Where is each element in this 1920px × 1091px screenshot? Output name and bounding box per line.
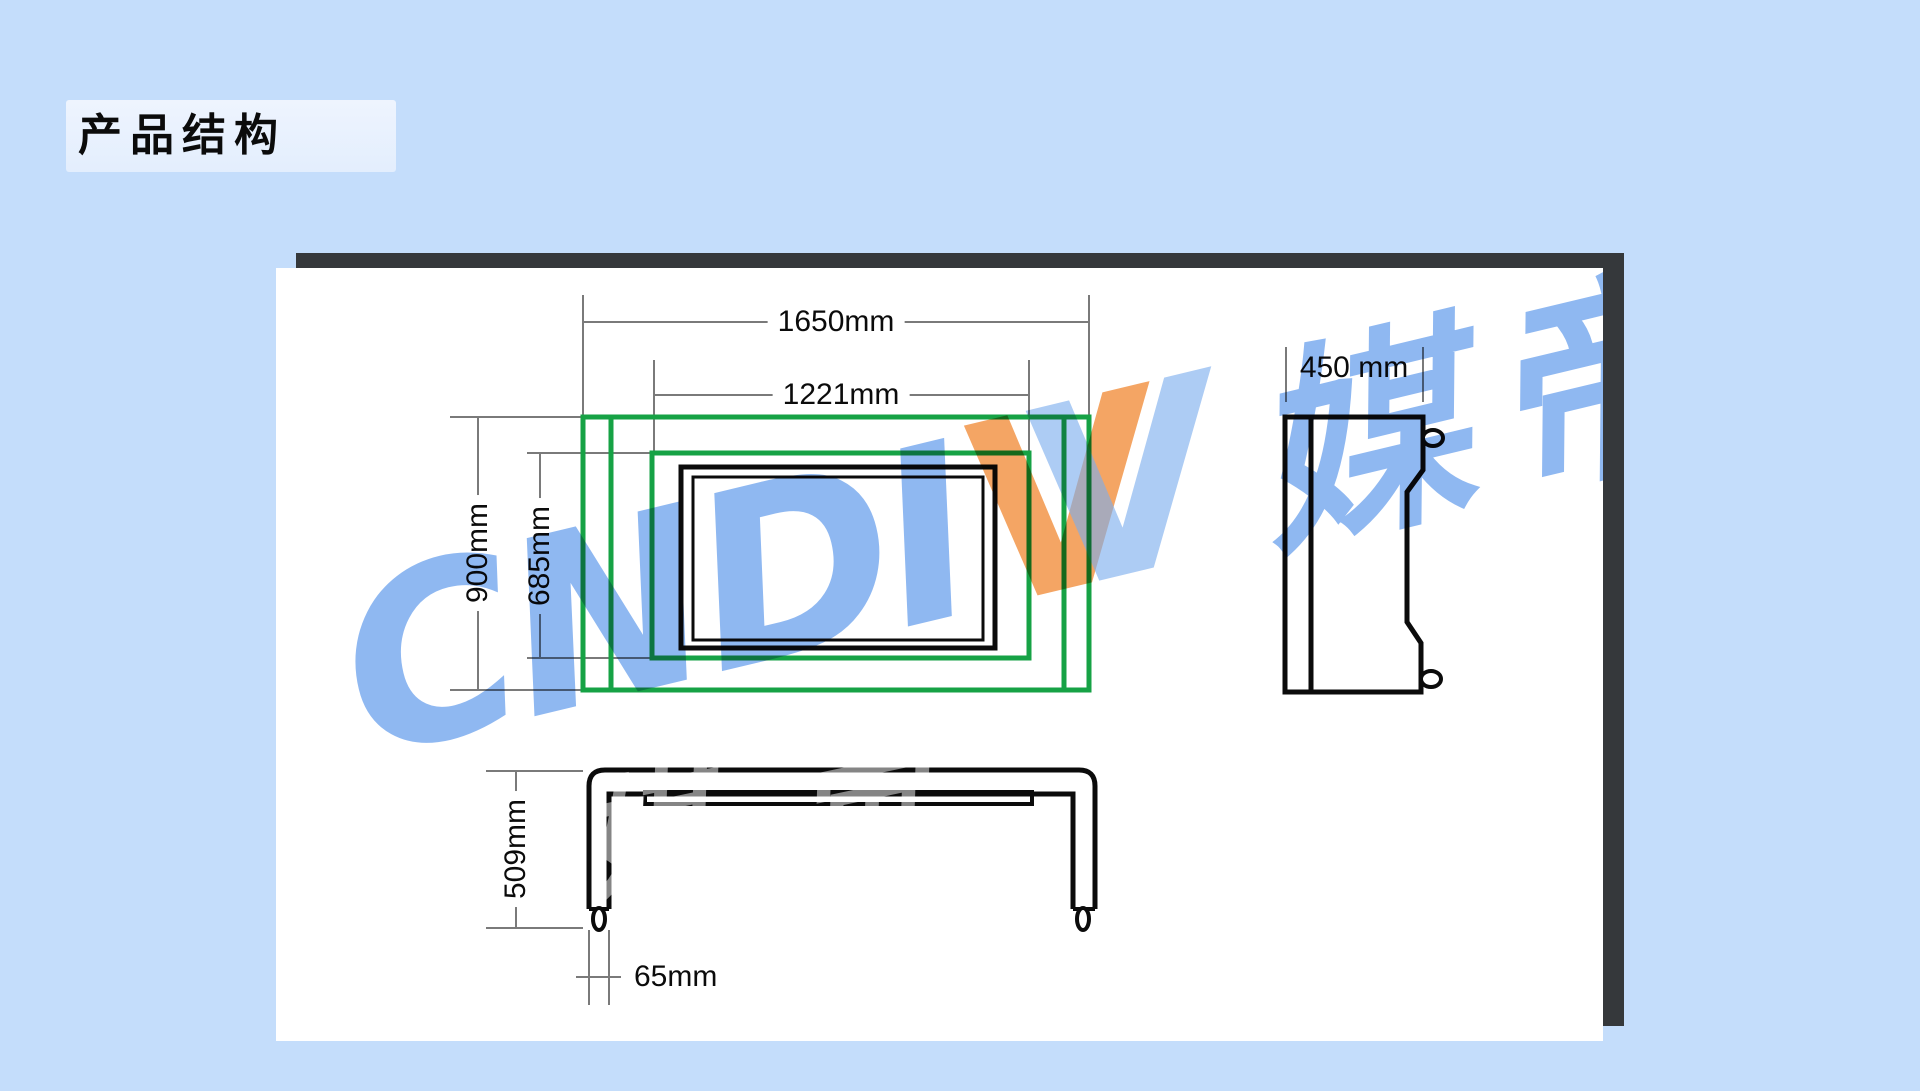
page-title: 产品结构: [78, 100, 286, 172]
stand-right-foot: [1077, 908, 1089, 930]
dim-label-outer-height: 900mm: [461, 495, 495, 611]
side-view: [1285, 417, 1443, 692]
side-top-hook: [1423, 430, 1443, 446]
slide: 产品结构: [0, 0, 1920, 1091]
dim-label-foot-offset: 65mm: [624, 960, 727, 994]
screen-inner: [693, 477, 983, 640]
screen-outer: [681, 467, 995, 648]
dim-label-stand-height: 509mm: [499, 791, 533, 907]
dim-label-depth: 450 mm: [1290, 351, 1418, 385]
dim-label-outer-width: 1650mm: [768, 305, 905, 339]
dim-label-inner-width: 1221mm: [773, 378, 910, 412]
side-profile: [1285, 417, 1423, 692]
front-inner-frame: [652, 453, 1029, 658]
front-view: [583, 417, 1089, 690]
drawing-canvas: 1650mm 1221mm 900mm 685mm 450 mm 509mm 6…: [276, 268, 1603, 1041]
dim-label-inner-height: 685mm: [523, 498, 557, 614]
side-bottom-hook: [1421, 671, 1441, 687]
